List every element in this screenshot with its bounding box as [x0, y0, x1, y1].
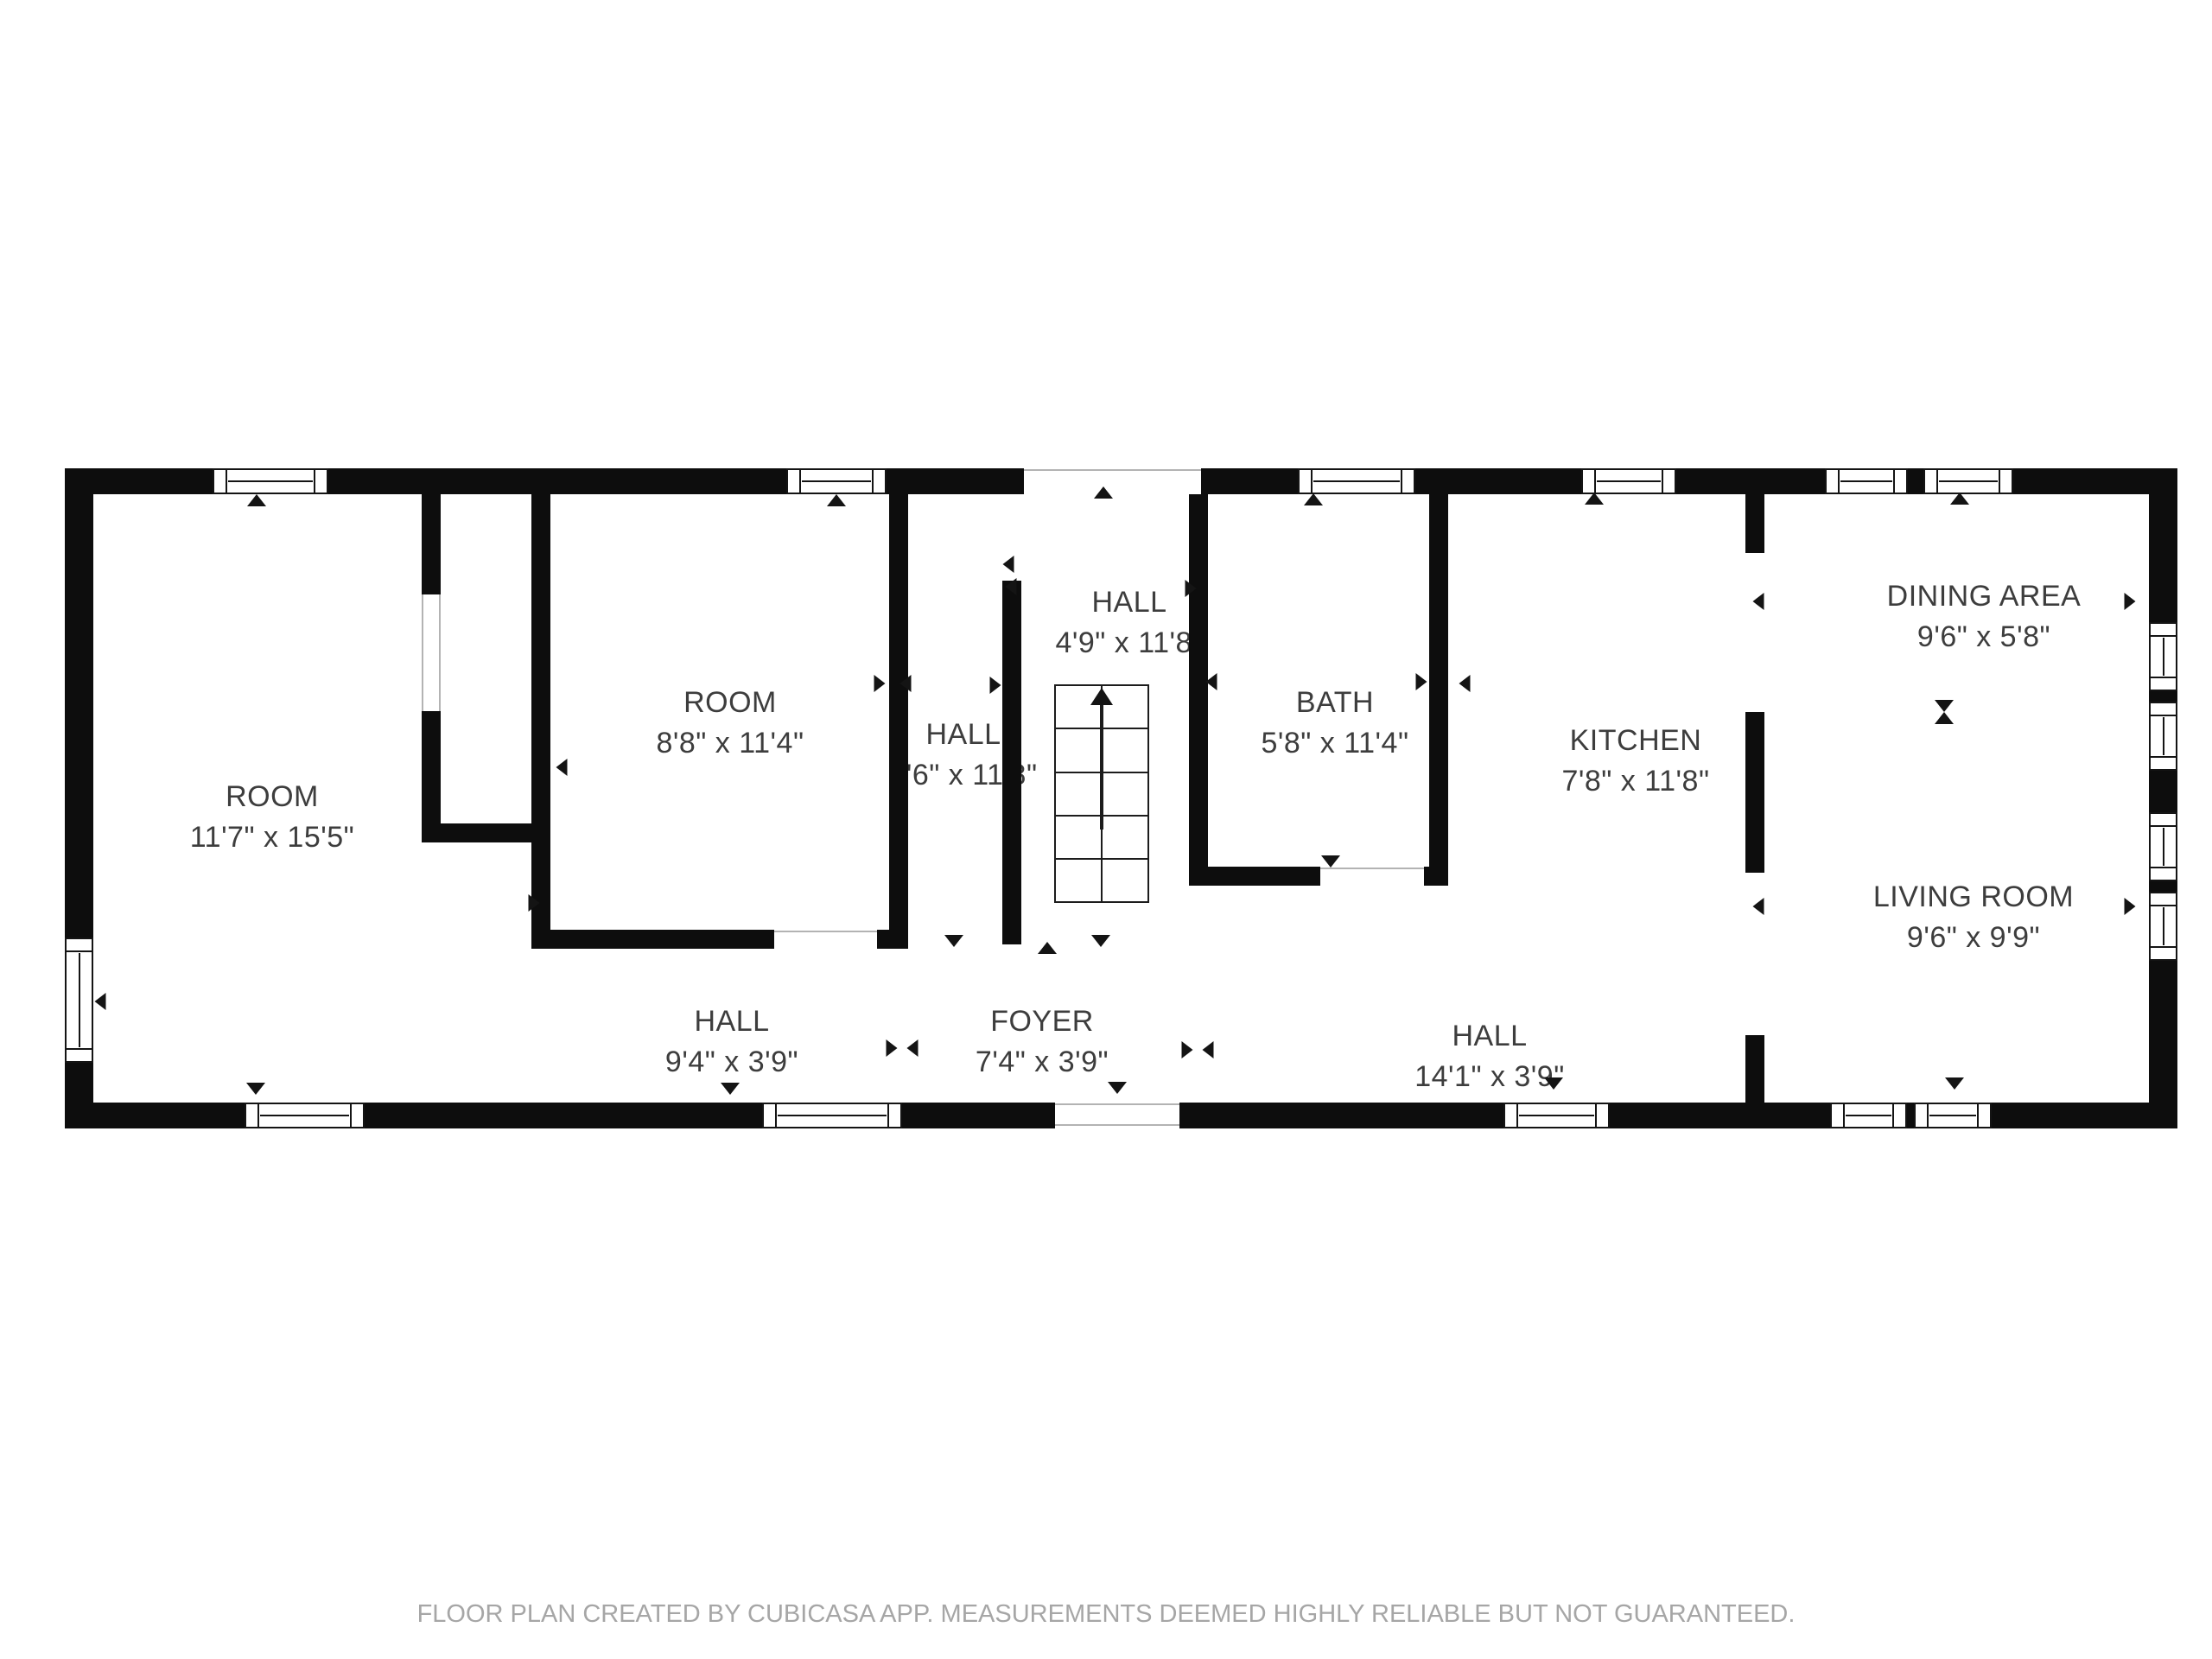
window-marker-icon: [1945, 1077, 1964, 1090]
wall: [531, 930, 774, 949]
room-label-room-left: ROOM11'7" x 15'5": [190, 777, 354, 858]
window: [2149, 622, 2177, 691]
window: [786, 468, 887, 494]
window-marker-icon: [1304, 493, 1323, 505]
stairs-up-arrow-shaft: [1100, 698, 1103, 829]
room-dims: 7'4" x 3'9": [976, 1042, 1109, 1083]
window-marker-icon: [2125, 898, 2136, 915]
door-marker-icon: [907, 1039, 918, 1057]
wall: [1745, 494, 1764, 553]
window-marker-icon: [95, 993, 106, 1010]
wall: [531, 494, 550, 949]
wall: [889, 494, 908, 949]
door-marker-icon: [1038, 942, 1057, 954]
door-marker-icon: [1459, 675, 1471, 692]
room-dims: 9'4" x 3'9": [665, 1042, 798, 1083]
window: [1830, 1103, 1907, 1128]
window: [245, 1103, 365, 1128]
window-marker-icon: [721, 1083, 740, 1095]
opening-edge-line: [1024, 469, 1201, 471]
door-marker-icon: [1753, 898, 1764, 915]
window-marker-icon: [1950, 493, 1969, 505]
wall: [1676, 468, 1825, 494]
room-name: HALL: [665, 1001, 798, 1042]
door-marker-icon: [1006, 578, 1017, 595]
window-marker-icon: [1544, 1077, 1563, 1090]
wall: [1179, 1103, 1503, 1128]
window-marker-icon: [1585, 493, 1604, 505]
room-name: HALL: [1414, 1016, 1565, 1057]
window-marker-icon: [827, 494, 846, 506]
window: [1503, 1103, 1610, 1128]
room-dims: 8'8" x 11'4": [656, 723, 804, 764]
room-name: LIVING ROOM: [1873, 877, 2074, 918]
wall: [1745, 1035, 1764, 1128]
window: [1581, 468, 1676, 494]
wall: [365, 1103, 762, 1128]
door-marker-icon: [874, 675, 886, 692]
front-door-opening-line: [1055, 1103, 1179, 1105]
wall: [65, 1063, 93, 1128]
wall: [65, 468, 93, 938]
room-dims: 7'8" x 11'8": [1561, 761, 1709, 802]
room-name: DINING AREA: [1887, 576, 2082, 617]
stairs-up-arrow-icon: [1090, 688, 1113, 705]
window: [2149, 892, 2177, 961]
room-label-living: LIVING ROOM9'6" x 9'9": [1873, 877, 2074, 958]
room-dims: 9'6" x 9'9": [1873, 918, 2074, 958]
staircase: [1054, 684, 1149, 903]
room-dims: 9'6" x 5'8": [1887, 617, 2082, 658]
front-door-opening-line: [1055, 1124, 1179, 1126]
door-marker-icon: [887, 1039, 898, 1057]
wall: [2149, 771, 2177, 812]
door-marker-icon: [1203, 1041, 1214, 1058]
window-marker-icon: [246, 1083, 265, 1095]
room-label-hall-east: HALL14'1" x 3'9": [1414, 1016, 1565, 1097]
door-marker-icon: [1753, 593, 1764, 610]
window: [1914, 1103, 1992, 1128]
door-marker-icon: [556, 759, 568, 776]
wall: [1610, 1103, 1830, 1128]
area-transition-marker-icon: [1935, 700, 1954, 712]
room-dims: 4'9" x 11'8": [1055, 623, 1203, 664]
door-marker-icon: [900, 675, 912, 692]
wall: [902, 1103, 1055, 1128]
room-name: FOYER: [976, 1001, 1109, 1042]
door-marker-icon: [1416, 673, 1427, 690]
room-label-hall-west: HALL9'4" x 3'9": [665, 1001, 798, 1083]
window: [2149, 702, 2177, 771]
room-dims: 14'1" x 3'9": [1414, 1057, 1565, 1097]
opening-edge-line: [774, 931, 882, 932]
wall: [2149, 881, 2177, 892]
room-label-hall-stairs: HALL4'9" x 11'8": [1055, 582, 1203, 664]
room-label-kitchen: KITCHEN7'8" x 11'8": [1561, 721, 1709, 802]
wall: [1002, 581, 1021, 944]
door-opening-line: [1320, 868, 1424, 869]
window: [1923, 468, 2013, 494]
bath-wall: [1189, 867, 1320, 886]
window: [1825, 468, 1908, 494]
wall: [2149, 691, 2177, 702]
room-label-room-2: ROOM8'8" x 11'4": [656, 683, 804, 764]
wall: [1908, 468, 1923, 494]
wall: [2149, 961, 2177, 1128]
wall: [2149, 468, 2177, 622]
footer-disclaimer: FLOOR PLAN CREATED BY CUBICASA APP. MEAS…: [0, 1600, 2212, 1629]
window: [213, 468, 328, 494]
door-marker-icon: [1003, 556, 1014, 573]
door-marker-icon: [529, 894, 540, 912]
room-label-foyer: FOYER7'4" x 3'9": [976, 1001, 1109, 1083]
window-marker-icon: [2125, 593, 2136, 610]
window: [2149, 812, 2177, 881]
wall: [887, 468, 1024, 494]
window: [762, 1103, 902, 1128]
door-marker-icon: [1206, 673, 1217, 690]
bath-wall: [1429, 494, 1448, 886]
door-marker-icon: [990, 677, 1001, 694]
wall: [328, 468, 786, 494]
opening-edge-line: [439, 594, 441, 711]
bath-wall: [1424, 867, 1448, 886]
closet-wall: [422, 494, 441, 594]
area-transition-marker-icon: [1935, 712, 1954, 724]
room-name: KITCHEN: [1561, 721, 1709, 761]
window-marker-icon: [247, 494, 266, 506]
door-marker-icon: [1091, 935, 1110, 947]
door-marker-icon: [944, 935, 963, 947]
door-marker-icon: [1108, 1082, 1127, 1094]
door-marker-icon: [1185, 580, 1197, 597]
room-name: ROOM: [190, 777, 354, 817]
wall: [1201, 468, 1298, 494]
room-name: BATH: [1261, 683, 1408, 723]
room-name: ROOM: [656, 683, 804, 723]
room-name: HALL: [1055, 582, 1203, 623]
wall: [1907, 1103, 1914, 1128]
window: [1298, 468, 1415, 494]
door-marker-icon: [1182, 1041, 1193, 1058]
wall: [1415, 468, 1581, 494]
room-dims: 5'8" x 11'4": [1261, 723, 1408, 764]
door-marker-icon: [1094, 486, 1113, 499]
window: [65, 938, 93, 1063]
room-dims: 11'7" x 15'5": [190, 817, 354, 858]
wall: [1745, 712, 1764, 873]
door-marker-icon: [1321, 855, 1340, 868]
room-label-bath: BATH5'8" x 11'4": [1261, 683, 1408, 764]
room-label-dining: DINING AREA9'6" x 5'8": [1887, 576, 2082, 658]
floor-plan-canvas: ROOM11'7" x 15'5" ROOM8'8" x 11'4" HALL2…: [0, 0, 2212, 1659]
opening-edge-line: [422, 594, 423, 711]
